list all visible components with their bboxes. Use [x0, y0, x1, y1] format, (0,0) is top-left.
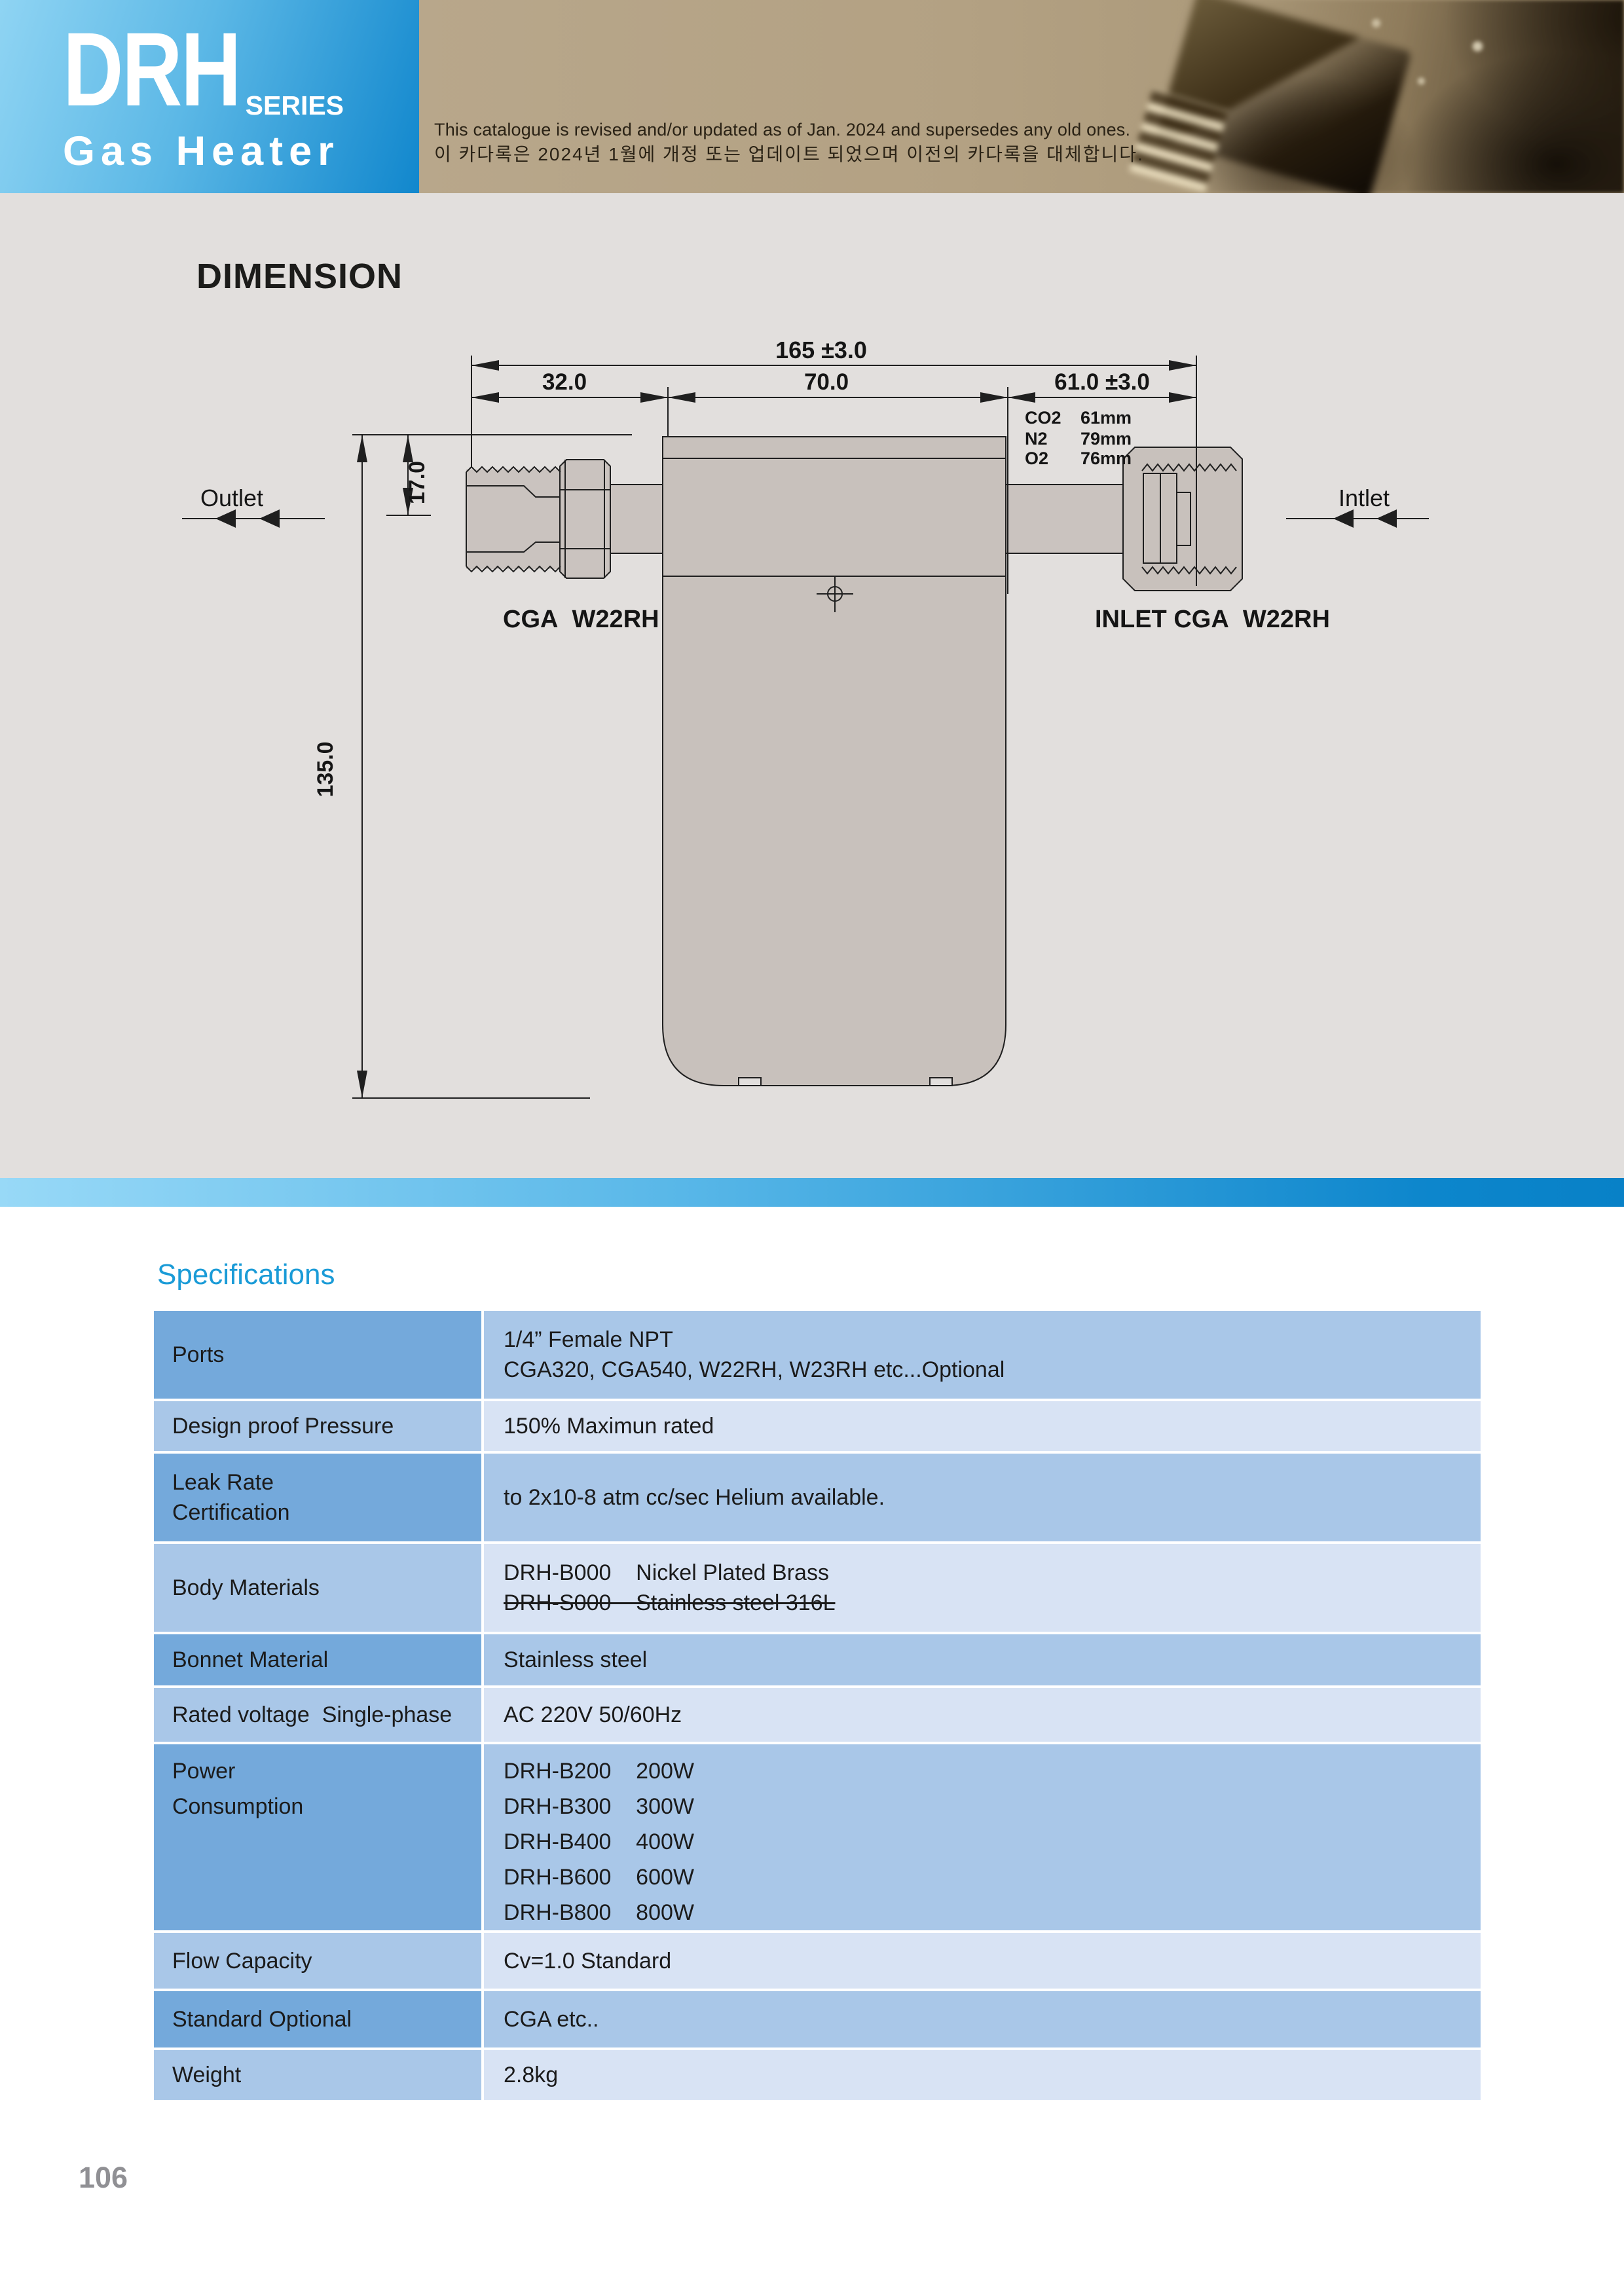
- gas-name: CO2: [1025, 408, 1061, 428]
- inlet-flow-arrow: [1333, 509, 1354, 528]
- gas-length: 76mm: [1080, 449, 1132, 468]
- row-value: 1/4” Female NPT CGA320, CGA540, W22RH, W…: [484, 1311, 1481, 1399]
- table-row-rated-voltage: Rated voltage Single-phase AC 220V 50/60…: [154, 1688, 1481, 1742]
- table-row-bonnet-material: Bonnet Material Stainless steel: [154, 1634, 1481, 1685]
- row-label-text: Rated voltage Single-phase: [172, 1700, 481, 1730]
- row-label-text: Body Materials: [172, 1573, 481, 1603]
- dim-32-text: 32.0: [542, 369, 587, 395]
- inlet-port-label: INLET CGA W22RH: [1095, 606, 1330, 633]
- technical-drawing: 165 ±3.0 32.0 70.0 61.0 ±3.0 CO2 61mm N2…: [0, 193, 1624, 1178]
- body-foot-notch: [930, 1078, 952, 1086]
- dim-arrow: [1008, 392, 1035, 403]
- dim-17-text: 17.0: [405, 461, 430, 504]
- table-row-weight: Weight 2.8kg: [154, 2050, 1481, 2100]
- dim-arrow: [1169, 360, 1196, 371]
- row-value-text: CGA etc..: [504, 2004, 1481, 2034]
- table-row-power-consumption: Power Consumption DRH-B200 200W DRH-B300…: [154, 1744, 1481, 1930]
- row-label-text: Bonnet Material: [172, 1645, 481, 1675]
- inlet-stub: [1006, 485, 1123, 553]
- revision-note: This catalogue is revised and/or updated…: [434, 118, 1144, 168]
- outlet-flow-arrow: [259, 509, 280, 528]
- inlet-label: Intlet: [1338, 485, 1390, 511]
- revision-note-korean: 이 카다록은 2024년 1월에 개정 또는 업데이트 되었으며 이전의 카다록…: [434, 141, 1144, 168]
- outlet-port-label: CGA W22RH: [503, 606, 659, 633]
- row-value: 2.8kg: [484, 2050, 1481, 2100]
- row-label-text: Leak Rate Certification: [172, 1467, 481, 1528]
- table-row-body-materials: Body Materials DRH-B000 Nickel Plated Br…: [154, 1544, 1481, 1632]
- row-value: Stainless steel: [484, 1634, 1481, 1685]
- table-row-leak-rate: Leak Rate Certification to 2x10-8 atm cc…: [154, 1454, 1481, 1541]
- body-foot-notch: [739, 1078, 761, 1086]
- series-logo-block: DRH SERIES Gas Heater: [0, 0, 419, 193]
- table-row-standard-optional: Standard Optional CGA etc..: [154, 1991, 1481, 2047]
- row-value: Cv=1.0 Standard: [484, 1933, 1481, 1989]
- specifications-title: Specifications: [157, 1258, 335, 1291]
- table-row-ports: Ports 1/4” Female NPT CGA320, CGA540, W2…: [154, 1311, 1481, 1399]
- row-value: CGA etc..: [484, 1991, 1481, 2047]
- row-value-text: 2.8kg: [504, 2060, 1481, 2090]
- outlet-flow-arrow: [215, 509, 236, 528]
- dim-135-text: 135.0: [313, 741, 338, 797]
- dim-arrow: [357, 1071, 367, 1098]
- dim-arrow: [640, 392, 668, 403]
- row-label-text: Weight: [172, 2060, 481, 2090]
- row-value-strikethrough-text: DRH-S000 Stainless steel 316L: [504, 1588, 1481, 1618]
- row-value-text: DRH-B000 Nickel Plated Brass: [504, 1558, 1481, 1588]
- outlet-label: Outlet: [200, 485, 263, 511]
- header-banner: This catalogue is revised and/or updated…: [419, 0, 1624, 193]
- section-divider-bar: [0, 1178, 1624, 1207]
- row-label: Leak Rate Certification: [154, 1454, 481, 1541]
- table-row-design-proof-pressure: Design proof Pressure 150% Maximun rated: [154, 1401, 1481, 1451]
- dim-overall-text: 165 ±3.0: [775, 337, 867, 363]
- dimension-section: DIMENSION: [0, 193, 1624, 1178]
- dim-70-text: 70.0: [804, 369, 849, 395]
- inlet-flow-arrow: [1376, 509, 1397, 528]
- row-label: Rated voltage Single-phase: [154, 1688, 481, 1742]
- row-label: Standard Optional: [154, 1991, 481, 2047]
- outlet-hex-nut: [560, 460, 610, 578]
- series-name-row: DRH SERIES: [63, 17, 344, 122]
- row-value-text: AC 220V 50/60Hz: [504, 1700, 1481, 1730]
- dim-arrow: [403, 435, 413, 462]
- outlet-thread-body: [466, 469, 561, 569]
- row-label: Weight: [154, 2050, 481, 2100]
- row-value-text: DRH-B200 200W DRH-B300 300W DRH-B400 400…: [504, 1753, 1481, 1930]
- product-name: Gas Heater: [63, 131, 340, 172]
- dim-arrow: [471, 392, 499, 403]
- row-value-text: 1/4” Female NPT CGA320, CGA540, W22RH, W…: [504, 1325, 1481, 1385]
- row-label-text: Power Consumption: [172, 1753, 481, 1824]
- row-value: to 2x10-8 atm cc/sec Helium available.: [484, 1454, 1481, 1541]
- row-label-text: Ports: [172, 1340, 481, 1370]
- row-value: AC 220V 50/60Hz: [484, 1688, 1481, 1742]
- dim-arrow: [980, 392, 1008, 403]
- row-label-text: Standard Optional: [172, 2004, 481, 2034]
- gas-name: O2: [1025, 449, 1048, 468]
- row-value: 150% Maximun rated: [484, 1401, 1481, 1451]
- row-label: Bonnet Material: [154, 1634, 481, 1685]
- row-value-text: Stainless steel: [504, 1645, 1481, 1675]
- dim-arrow: [357, 435, 367, 462]
- gas-length: 79mm: [1080, 429, 1132, 449]
- series-name: DRH: [63, 17, 240, 122]
- dim-arrow: [471, 360, 499, 371]
- row-label: Ports: [154, 1311, 481, 1399]
- dim-arrow: [668, 392, 695, 403]
- outlet-neck: [610, 485, 663, 553]
- page-header: DRH SERIES Gas Heater This catalogue is …: [0, 0, 1624, 193]
- row-value: DRH-B000 Nickel Plated Brass DRH-S000 St…: [484, 1544, 1481, 1632]
- gas-name: N2: [1025, 429, 1048, 449]
- row-value-text: Cv=1.0 Standard: [504, 1946, 1481, 1976]
- row-label-text: Flow Capacity: [172, 1946, 481, 1976]
- specifications-table: Ports 1/4” Female NPT CGA320, CGA540, W2…: [154, 1311, 1481, 2102]
- dim-arrow: [1169, 392, 1196, 403]
- row-value: DRH-B200 200W DRH-B300 300W DRH-B400 400…: [484, 1744, 1481, 1930]
- page-number: 106: [79, 2161, 128, 2195]
- gas-length: 61mm: [1080, 408, 1132, 428]
- circuit-board-photo: [1061, 0, 1624, 193]
- heater-body: [663, 437, 1006, 1086]
- row-value-text: 150% Maximun rated: [504, 1411, 1481, 1441]
- table-row-flow-capacity: Flow Capacity Cv=1.0 Standard: [154, 1933, 1481, 1989]
- series-suffix: SERIES: [246, 92, 344, 119]
- revision-note-english: This catalogue is revised and/or updated…: [434, 118, 1144, 141]
- row-label: Power Consumption: [154, 1744, 481, 1930]
- catalog-page: DRH SERIES Gas Heater This catalogue is …: [0, 0, 1624, 2295]
- row-label: Flow Capacity: [154, 1933, 481, 1989]
- dim-61-text: 61.0 ±3.0: [1054, 369, 1150, 395]
- row-label-text: Design proof Pressure: [172, 1411, 481, 1441]
- row-label: Design proof Pressure: [154, 1401, 481, 1451]
- row-label: Body Materials: [154, 1544, 481, 1632]
- row-value-text: to 2x10-8 atm cc/sec Helium available.: [504, 1482, 1481, 1513]
